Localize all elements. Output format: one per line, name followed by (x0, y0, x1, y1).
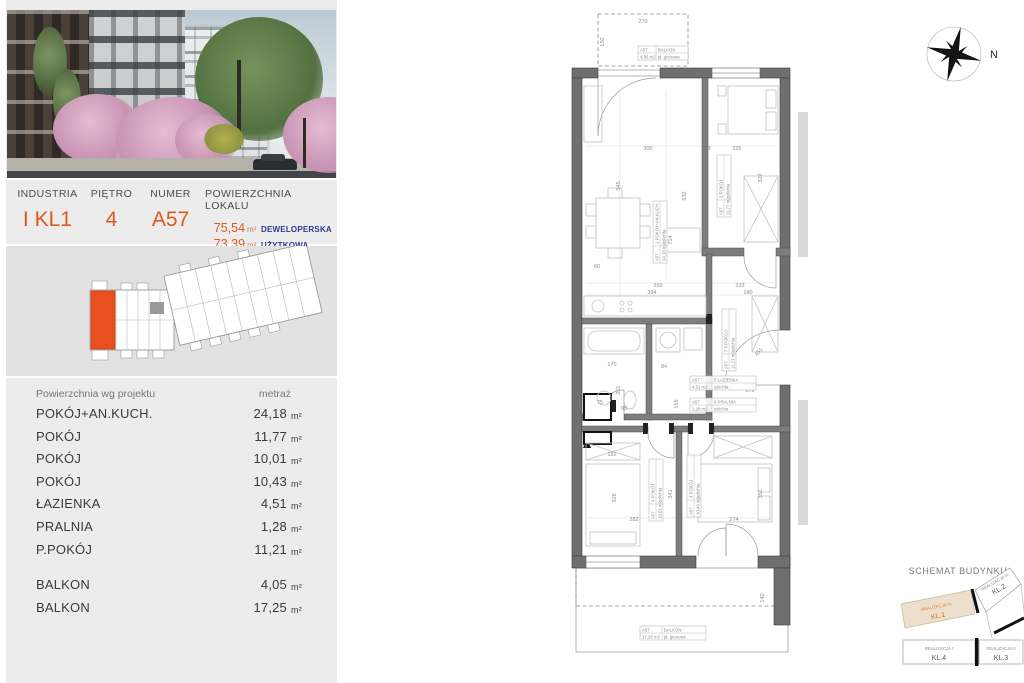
svg-text:11,77 m2: 11,77 m2 (726, 197, 731, 215)
svg-text:szlichta: szlichta (658, 487, 663, 502)
svg-text:szlichta: szlichta (726, 183, 731, 198)
furniture-room3 (584, 432, 640, 546)
svg-text:225: 225 (732, 146, 741, 152)
schemat-block-kl3[interactable]: REALIZACJA II KL.3 (979, 640, 1023, 664)
north-label: N (990, 49, 998, 61)
building-photo (7, 10, 336, 178)
schemat-block-kl1[interactable]: REALIZACJA IV KL.1 (901, 590, 975, 628)
svg-text:351: 351 (758, 489, 764, 498)
svg-text:1,28 m2: 1,28 m2 (692, 407, 708, 412)
svg-text:270: 270 (638, 19, 647, 25)
svg-text:300: 300 (643, 146, 652, 152)
compass-rose: N (918, 14, 1010, 92)
unit-info-bar: INDUSTRIA I KL1 PIĘTRO 4 NUMER A57 POWIE… (6, 180, 337, 244)
photo-car (253, 159, 297, 170)
svg-text:155: 155 (674, 399, 680, 408)
svg-text:7 P.POKÓJ: 7 P.POKÓJ (724, 330, 729, 352)
svg-text:4,51 m2: 4,51 m2 (692, 385, 708, 390)
svg-text:5 ŁAZIENKA: 5 ŁAZIENKA (714, 378, 738, 383)
svg-text:1 POKÓJ+AN.KUCH: 1 POKÓJ+AN.KUCH (655, 204, 660, 244)
svg-text:3 POKÓJ: 3 POKÓJ (651, 484, 656, 502)
svg-text:4,05 m2: 4,05 m2 (640, 55, 656, 60)
corridor-wall (798, 112, 808, 257)
photo-trunk (303, 118, 306, 168)
svg-text:A57: A57 (692, 378, 700, 383)
svg-text:95: 95 (621, 406, 627, 412)
area-table-header: Powierzchnia wg projektu metraż (6, 388, 337, 406)
svg-text:A57: A57 (651, 511, 656, 519)
svg-text:233: 233 (735, 283, 744, 289)
svg-text:szlichta: szlichta (714, 407, 729, 412)
building-schematic: SCHEMAT BUDYNKU REALIZACJA III KL.2 REAL… (893, 560, 1024, 680)
room-label-balcony-bottom: A57 BALKON 17,25 m2 pł. gresowe (640, 626, 706, 640)
svg-text:A57: A57 (689, 507, 694, 515)
svg-text:322: 322 (758, 173, 764, 182)
svg-text:REALIZACJA II: REALIZACJA II (986, 646, 1015, 651)
svg-text:REALIZACJA I: REALIZACJA I (925, 646, 953, 651)
svg-text:10,43 m2: 10,43 m2 (696, 496, 701, 515)
svg-text:KL.3: KL.3 (994, 655, 1009, 662)
svg-text:6 PRALNIA: 6 PRALNIA (714, 400, 736, 405)
table-header-value: metraż (235, 388, 291, 400)
table-row: POKÓJ 10,01 m² (6, 451, 337, 474)
room-label-laundry: A57 6 PRALNIA 1,28 m2 szlichta (690, 398, 756, 412)
schemat-divider (975, 638, 979, 666)
locator-right-wing (162, 246, 324, 353)
svg-text:szlichta: szlichta (731, 337, 736, 352)
svg-text:328: 328 (612, 493, 618, 502)
industria-value: I KL1 (12, 200, 83, 232)
numer-label: NUMER (140, 184, 201, 200)
locator-selected-unit[interactable] (91, 291, 115, 349)
schemat-title: SCHEMAT BUDYNKU (909, 566, 1008, 576)
pietro-value: 4 (83, 200, 140, 232)
svg-text:A57: A57 (642, 628, 650, 633)
table-header-name: Powierzchnia wg projektu (36, 388, 235, 400)
svg-text:140: 140 (760, 593, 766, 602)
powierzchnia-label: POWIERZCHNIA LOKALU (205, 184, 337, 212)
furniture-hall (752, 296, 778, 352)
floor-locator-section (6, 246, 337, 376)
svg-text:714: 714 (668, 235, 674, 244)
table-row-balkon: BALKON 4,05 m² (6, 577, 337, 600)
svg-text:A57: A57 (724, 361, 729, 369)
schemat-block-kl4[interactable]: REALIZACJA I KL.4 (903, 640, 975, 664)
svg-text:341: 341 (668, 489, 674, 498)
svg-text:pł. gresowe: pł. gresowe (664, 635, 687, 640)
svg-text:250: 250 (653, 283, 662, 289)
table-row: POKÓJ+AN.KUCH. 24,18 m² (6, 406, 337, 429)
floor-locator-map[interactable] (6, 246, 337, 376)
svg-text:pł. gresowe: pł. gresowe (658, 55, 681, 60)
svg-text:17,25 m2: 17,25 m2 (642, 635, 661, 640)
svg-text:282: 282 (629, 517, 638, 523)
schemat-divider (994, 618, 1024, 633)
svg-text:szlichta: szlichta (714, 385, 729, 390)
svg-text:84: 84 (661, 364, 667, 370)
svg-text:10,01 m2: 10,01 m2 (658, 500, 663, 519)
svg-text:60: 60 (594, 264, 600, 270)
room-label-room2: A57 2 POKÓJ 11,77 m2 szlichta (717, 155, 731, 217)
svg-text:szlichta: szlichta (662, 229, 667, 244)
svg-text:BALKON: BALKON (664, 628, 681, 633)
svg-text:BALKON: BALKON (658, 48, 675, 53)
svg-text:8: 8 (707, 146, 710, 152)
interior-walls (582, 78, 790, 556)
table-row: P.POKÓJ 11,21 m² (6, 542, 337, 565)
svg-text:4 POKÓJ: 4 POKÓJ (689, 480, 694, 498)
locator-stair-core (150, 302, 164, 314)
svg-text:150: 150 (600, 37, 606, 46)
svg-text:180: 180 (743, 290, 752, 296)
floor-plan: 270 150 (555, 0, 810, 683)
svg-text:A57: A57 (692, 400, 700, 405)
area-table: Powierzchnia wg projektu metraż POKÓJ+AN… (6, 378, 337, 622)
svg-text:384: 384 (647, 290, 656, 296)
room-label-hall: A57 7 P.POKÓJ 11,21 m2 szlichta (722, 309, 736, 371)
window-bottom (586, 556, 640, 568)
numer-value: A57 (140, 200, 201, 232)
corridor-wall (798, 400, 808, 525)
svg-text:KL.4: KL.4 (932, 655, 947, 662)
svg-text:szlichta: szlichta (696, 483, 701, 498)
svg-text:75: 75 (597, 400, 603, 406)
room-label-balcony-top: A57 BALKON 4,05 m2 pł. gresowe (638, 46, 688, 60)
area-deweloperska: 75,54 m² DEWELOPERSKA (205, 219, 337, 235)
area-table-section: Powierzchnia wg projektu metraż POKÓJ+AN… (6, 378, 337, 683)
table-row: POKÓJ 10,43 m² (6, 474, 337, 497)
window-top (712, 68, 760, 78)
photo-section (6, 0, 337, 178)
svg-text:545: 545 (616, 181, 622, 190)
table-row-balkon: BALKON 17,25 m² (6, 600, 337, 623)
table-row: POKÓJ 11,77 m² (6, 429, 337, 452)
room-label-room4: A57 4 POKÓJ 10,43 m2 szlichta (687, 455, 701, 517)
table-row: PRALNIA 1,28 m² (6, 519, 337, 542)
svg-text:182: 182 (607, 452, 616, 458)
table-row: ŁAZIENKA 4,51 m² (6, 496, 337, 519)
svg-text:11,21 m2: 11,21 m2 (731, 351, 736, 369)
svg-text:532: 532 (682, 191, 688, 200)
svg-text:201: 201 (616, 385, 622, 394)
svg-text:2 POKÓJ: 2 POKÓJ (719, 180, 724, 198)
industria-label: INDUSTRIA (12, 184, 83, 200)
room-label-living: A57 1 POKÓJ+AN.KUCH 24,18 m2 szlichta (653, 201, 667, 263)
svg-text:A57: A57 (719, 207, 724, 215)
left-panel: INDUSTRIA I KL1 PIĘTRO 4 NUMER A57 POWIE… (0, 0, 345, 683)
pietro-label: PIĘTRO (83, 184, 140, 200)
svg-text:24,18 m2: 24,18 m2 (662, 242, 667, 261)
photo-road (7, 171, 336, 178)
svg-text:170: 170 (607, 362, 616, 368)
compass-star (920, 20, 988, 88)
svg-text:A57: A57 (640, 48, 648, 53)
balcony-door-top (598, 70, 660, 136)
svg-text:A57: A57 (655, 253, 660, 261)
room-label-room3: A57 3 POKÓJ 10,01 m2 szlichta (649, 459, 663, 521)
svg-text:451: 451 (754, 347, 765, 358)
room-label-bath: A57 5 ŁAZIENKA 4,51 m2 szlichta (690, 376, 756, 390)
svg-text:274: 274 (729, 517, 738, 523)
